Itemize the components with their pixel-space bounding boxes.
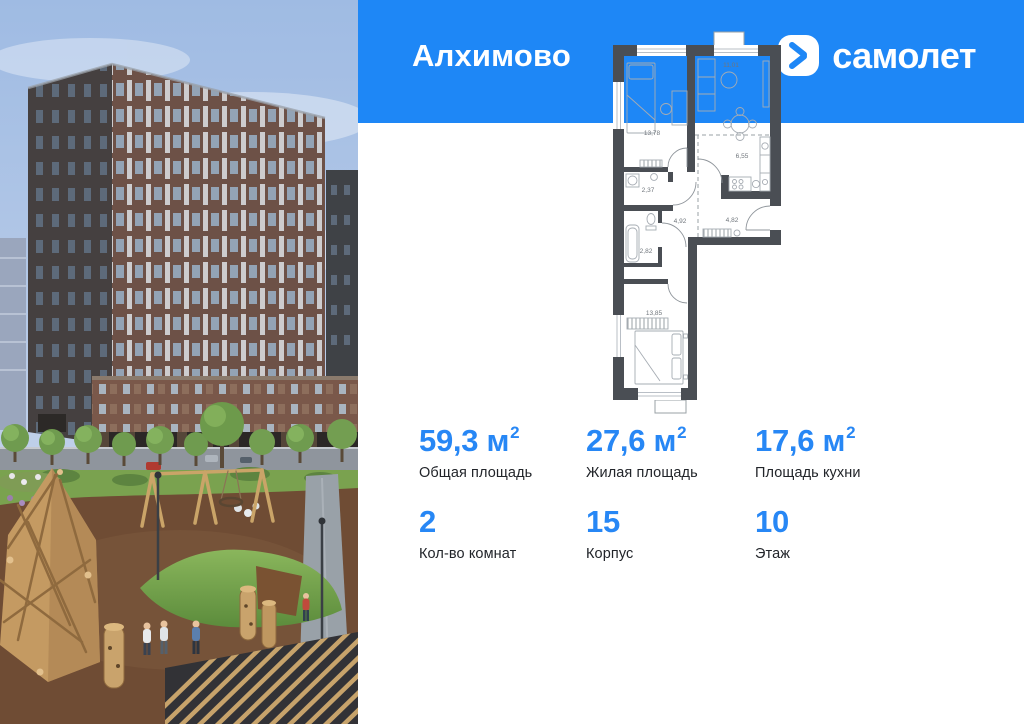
room-label-bedroom-1: 13,78: [644, 130, 661, 137]
room-label-bathroom: 2,82: [640, 248, 653, 255]
stat-label: Кол-во комнат: [419, 546, 584, 562]
room-label-corridor: 4,82: [726, 217, 739, 224]
stat-total-area: 59,3 м2 Общая площадь: [419, 425, 584, 481]
info-panel: Алхимово самолет: [358, 0, 1024, 724]
balcony-bottom: [655, 400, 686, 413]
floor-plan-drawing: 13,78 11,01 6,55 2,37 4,92 4,82 2,82 13,…: [610, 25, 782, 417]
stat-label: Этаж: [755, 546, 920, 562]
grey-car: [205, 455, 218, 462]
stat-label: Корпус: [586, 546, 751, 562]
stat-label: Площадь кухни: [755, 465, 920, 481]
outer-walls: [613, 45, 781, 400]
stat-rooms-count: 2 Кол-во комнат: [419, 506, 584, 562]
stat-label: Жилая площадь: [586, 465, 751, 481]
stat-kitchen-area: 17,6 м2 Площадь кухни: [755, 425, 920, 481]
stat-living-area: 27,6 м2 Жилая площадь: [586, 425, 751, 481]
room-label-living: 11,01: [723, 62, 739, 69]
floor-plan: 13,78 11,01 6,55 2,37 4,92 4,82 2,82 13,…: [610, 25, 782, 417]
stat-label: Общая площадь: [419, 465, 584, 481]
room-label-kitchen: 6,55: [736, 153, 749, 160]
chevron-right-icon: [778, 35, 819, 76]
door-arcs: [662, 148, 770, 303]
brand-name: самолет: [832, 38, 976, 74]
project-title: Алхимово: [412, 40, 571, 71]
samolet-logo: самолет: [778, 35, 976, 76]
room-label-toilet: 2,37: [642, 187, 655, 194]
complex-photo-illustration: [0, 0, 358, 724]
dark-car: [240, 457, 252, 463]
stat-building-number: 15 Корпус: [586, 506, 751, 562]
room-label-bedroom-2: 13,85: [646, 310, 663, 317]
stat-floor-number: 10 Этаж: [755, 506, 920, 562]
room-label-hall: 4,92: [674, 218, 687, 225]
complex-photo: [0, 0, 358, 724]
distant-building: [0, 238, 26, 430]
balcony-top: [714, 32, 744, 46]
listing-card: Алхимово самолет: [0, 0, 1024, 724]
entrance-door-gap: [770, 206, 781, 230]
